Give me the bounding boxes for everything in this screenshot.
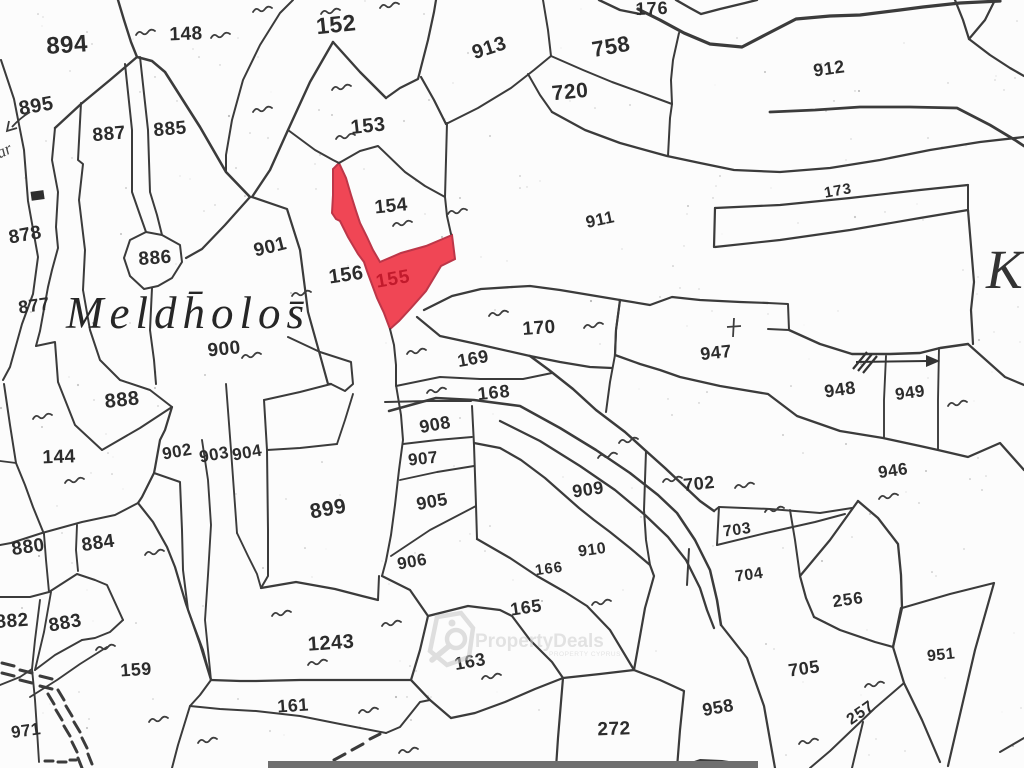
svg-text:882: 882: [0, 610, 29, 633]
svg-text:154: 154: [374, 194, 409, 218]
svg-text:159: 159: [120, 658, 153, 680]
svg-text:Meldh̄olos̄: Meldh̄olos̄: [65, 288, 310, 338]
svg-text:153: 153: [350, 113, 387, 139]
svg-text:1243: 1243: [307, 631, 355, 656]
svg-text:176: 176: [635, 0, 669, 19]
svg-text:900: 900: [207, 337, 242, 361]
svg-text:887: 887: [92, 122, 127, 146]
svg-text:888: 888: [104, 387, 141, 413]
svg-text:PropertyDeals: PropertyDeals: [475, 631, 604, 652]
svg-text:152: 152: [315, 9, 357, 39]
svg-text:720: 720: [551, 79, 590, 106]
svg-text:907: 907: [407, 448, 439, 470]
svg-text:170: 170: [522, 317, 557, 340]
svg-text:161: 161: [277, 694, 310, 716]
svg-text:886: 886: [138, 247, 173, 270]
svg-text:951: 951: [926, 645, 956, 665]
svg-text:947: 947: [699, 341, 732, 364]
svg-text:272: 272: [597, 718, 631, 740]
svg-text:PROPERTY CYPRUS: PROPERTY CYPRUS: [549, 651, 621, 658]
svg-text:885: 885: [153, 117, 188, 141]
svg-text:148: 148: [169, 23, 203, 45]
svg-text:168: 168: [477, 381, 512, 404]
svg-text:Ko: Ko: [985, 239, 1024, 300]
svg-text:894: 894: [45, 30, 88, 60]
svg-text:144: 144: [42, 446, 76, 468]
svg-text:702: 702: [682, 472, 715, 495]
